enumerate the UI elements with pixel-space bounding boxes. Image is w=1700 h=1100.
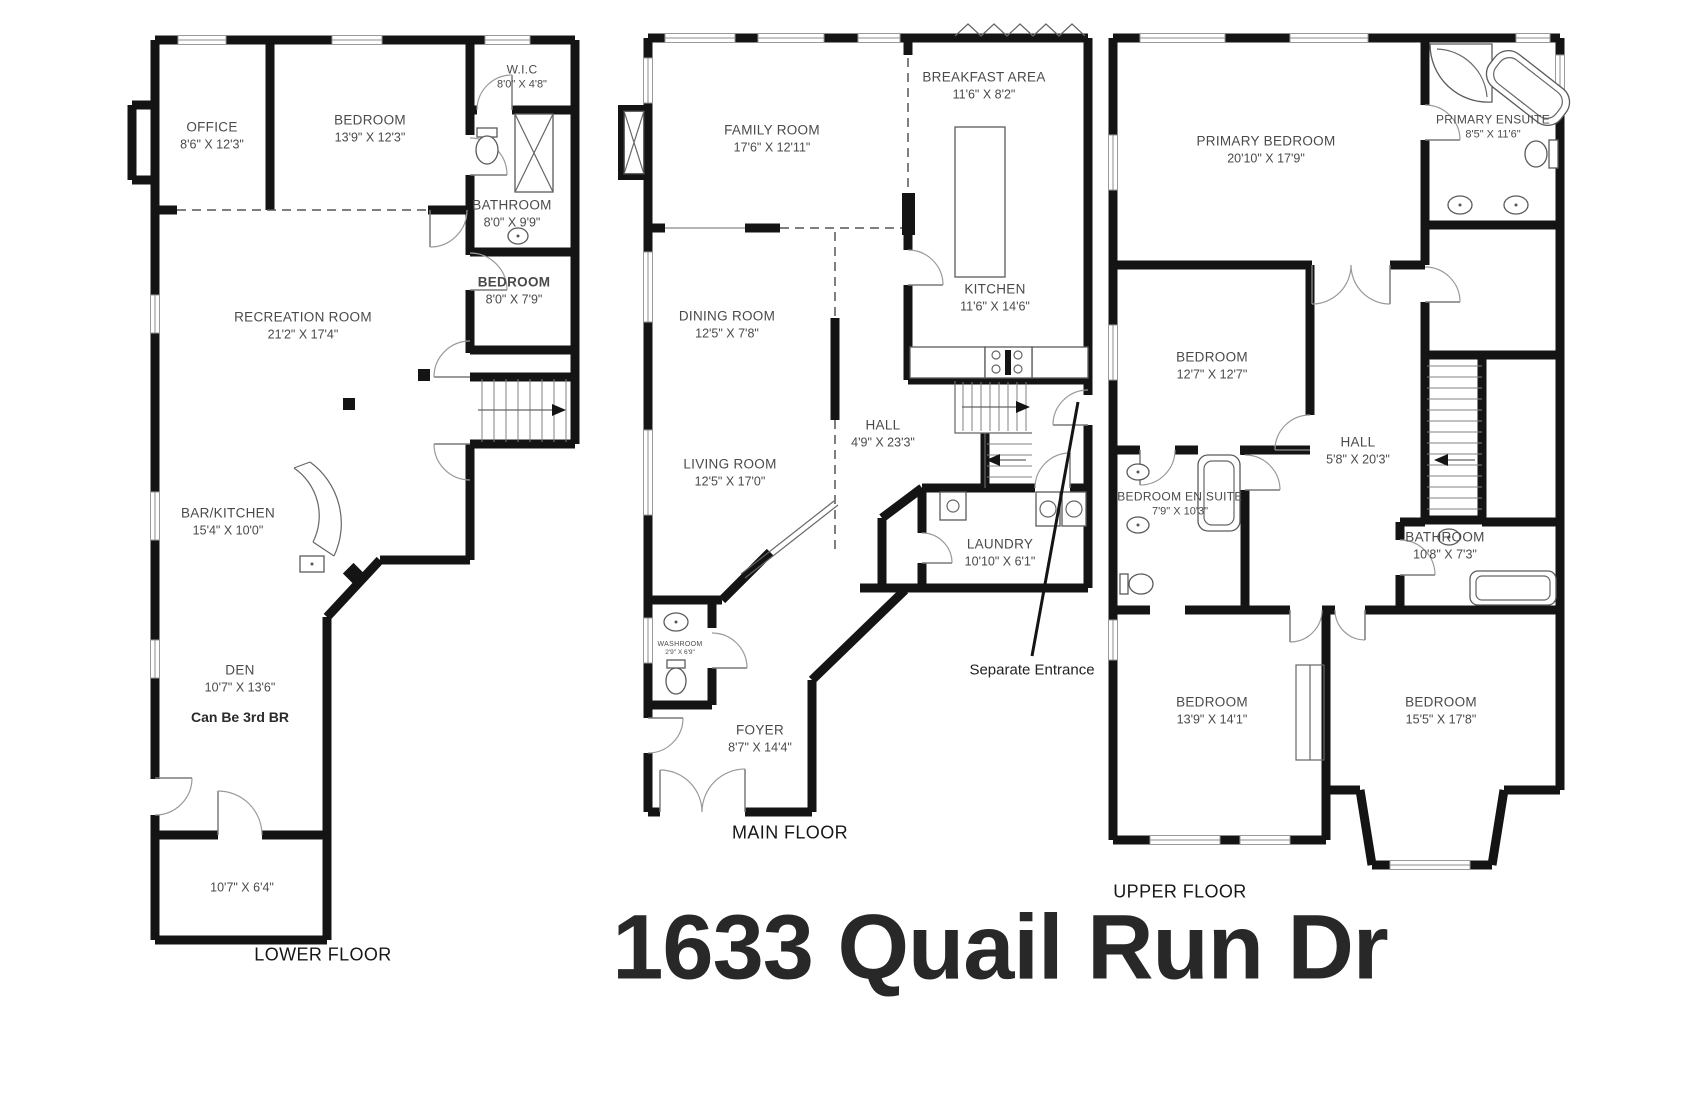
post xyxy=(418,369,430,381)
room-label-den: DEN 10'7" X 13'6" xyxy=(205,661,276,696)
room-label-washroom: WASHROOM 2'9" X 6'9" xyxy=(658,640,703,658)
room-label-foyer: FOYER 8'7" X 14'4" xyxy=(728,721,792,756)
kitchen-island xyxy=(955,127,1005,277)
den-note: Can Be 3rd BR xyxy=(191,709,289,725)
room-label-recreation: RECREATION ROOM 21'2" X 17'4" xyxy=(234,308,372,343)
room-label-living: LIVING ROOM 12'5" X 17'0" xyxy=(683,455,776,490)
lower-stairs-icon xyxy=(478,379,566,442)
laundry-sink-icon xyxy=(940,492,966,520)
room-label-main-hall: HALL 4'9" X 23'3" xyxy=(851,416,915,451)
lower-floor-plan xyxy=(132,36,575,941)
floor-label-lower: LOWER FLOOR xyxy=(254,945,391,966)
room-label-wic: W.I.C 8'0" X 4'8" xyxy=(497,61,547,92)
room-label-primary: PRIMARY BEDROOM 20'10" X 17'9" xyxy=(1196,132,1335,167)
page-title: 1633 Quail Run Dr xyxy=(612,896,1387,1001)
closet-icon xyxy=(1296,665,1324,760)
room-label-laundry: LAUNDRY 10'10" X 6'1" xyxy=(965,535,1036,570)
floorplan-canvas: OFFICE 8'6" X 12'3" BEDROOM 13'9" X 12'3… xyxy=(0,0,1700,1100)
stove-icon xyxy=(985,347,1032,378)
room-label-upper-bathroom: BATHROOM 10'8" X 7'3" xyxy=(1405,528,1484,563)
room-label-bedroom-top: BEDROOM 13'9" X 12'3" xyxy=(334,111,406,146)
room-label-bedroom-side: BEDROOM 8'0" X 7'9" xyxy=(478,273,551,308)
room-label-bedroom-ensuite: BEDROOM EN SUITE 7'9" X 10'3" xyxy=(1117,488,1242,519)
bedroom-ensuite-fixtures xyxy=(1120,455,1240,594)
room-label-bedroom-right: BEDROOM 15'5" X 17'8" xyxy=(1405,693,1477,728)
separate-entrance-leader xyxy=(1032,402,1078,656)
room-label-storage: 10'7" X 6'4" xyxy=(210,880,274,897)
room-label-upper-hall: HALL 5'8" X 20'3" xyxy=(1326,433,1390,468)
upper-stairs-icon xyxy=(1427,366,1482,509)
post xyxy=(343,398,355,410)
room-label-bedroom-mid: BEDROOM 12'7" X 12'7" xyxy=(1176,348,1248,383)
main-stairs-icon xyxy=(955,381,1032,488)
bar-counter xyxy=(294,462,341,572)
chimney-box xyxy=(618,105,650,180)
room-label-office: OFFICE 8'6" X 12'3" xyxy=(180,118,244,153)
floor-label-main: MAIN FLOOR xyxy=(732,823,848,844)
room-label-kitchen: KITCHEN 11'6" X 14'6" xyxy=(960,280,1030,315)
room-label-dining: DINING ROOM 12'5" X 7'8" xyxy=(679,307,775,342)
room-label-breakfast: BREAKFAST AREA 11'6" X 8'2" xyxy=(922,68,1045,103)
room-label-lower-bathroom: BATHROOM 8'0" X 9'9" xyxy=(472,196,551,231)
separate-entrance-label: Separate Entrance xyxy=(969,662,1094,679)
room-label-primary-ensuite: PRIMARY ENSUITE 8'5" X 11'6" xyxy=(1436,111,1550,142)
room-label-bar-kitchen: BAR/KITCHEN 15'4" X 10'0" xyxy=(181,504,275,539)
room-label-family: FAMILY ROOM 17'6" X 12'11" xyxy=(724,121,820,156)
room-label-bedroom-left: BEDROOM 13'9" X 14'1" xyxy=(1176,693,1248,728)
